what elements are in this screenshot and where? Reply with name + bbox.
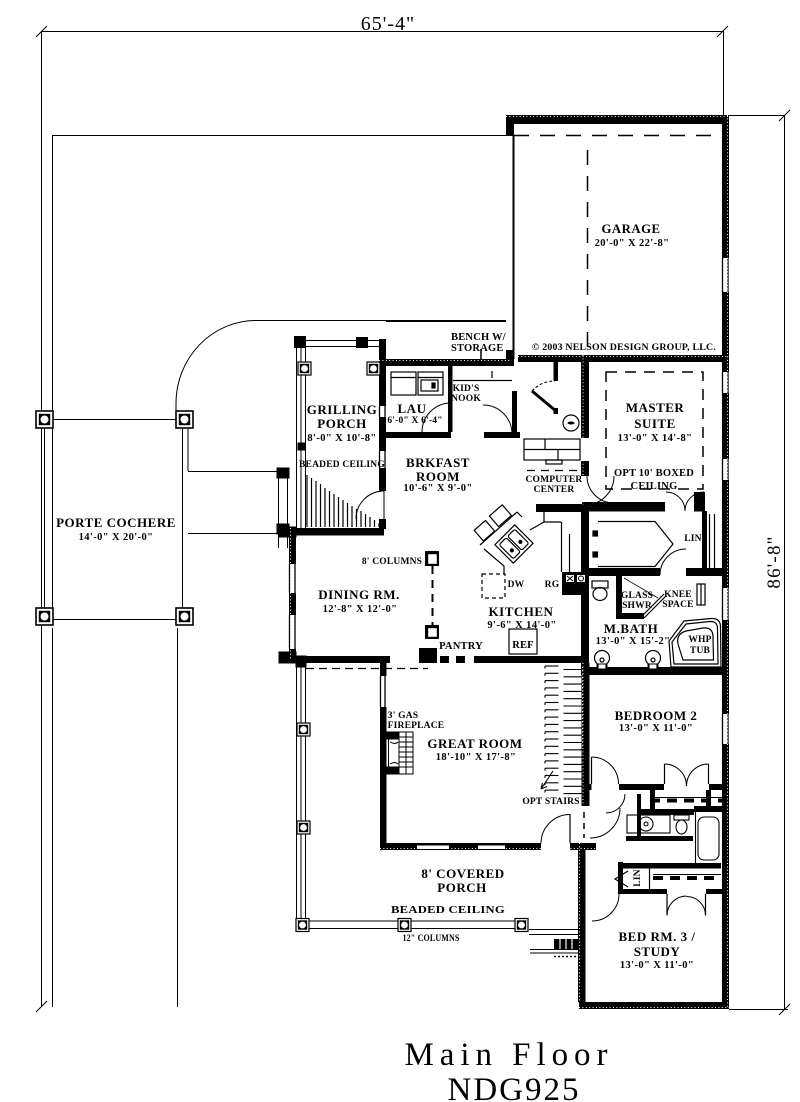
svg-text:GARAGE: GARAGE (602, 221, 661, 236)
svg-text:GRILLING: GRILLING (307, 402, 377, 417)
svg-text:13'-0" X 11'-0": 13'-0" X 11'-0" (619, 723, 693, 734)
svg-text:SHWR: SHWR (622, 601, 652, 611)
svg-text:RG: RG (545, 580, 560, 590)
svg-text:20'-0" X 22'-8": 20'-0" X 22'-8" (595, 238, 670, 249)
svg-text:10'-6" X 9'-0": 10'-6" X 9'-0" (403, 483, 472, 494)
svg-text:13'-0" X 15'-2": 13'-0" X 15'-2" (596, 636, 671, 647)
svg-text:BRKFAST: BRKFAST (406, 455, 470, 470)
svg-text:STUDY: STUDY (634, 944, 681, 959)
svg-text:PORCH: PORCH (317, 416, 366, 431)
svg-text:12'-8" X 12'-0": 12'-8" X 12'-0" (323, 604, 398, 615)
svg-text:GLASS: GLASS (621, 591, 653, 601)
svg-text:3' GAS: 3' GAS (388, 711, 419, 721)
svg-text:BED RM. 3 /: BED RM. 3 / (619, 929, 696, 944)
svg-text:SPACE: SPACE (662, 600, 693, 610)
svg-text:86'-8": 86'-8" (764, 535, 785, 588)
svg-text:BEDROOM 2: BEDROOM 2 (615, 708, 698, 723)
svg-text:BENCH W/: BENCH W/ (451, 332, 507, 343)
svg-text:CEILING: CEILING (631, 481, 678, 492)
svg-text:65'-4": 65'-4" (361, 13, 415, 35)
svg-text:© 2003 NELSON DESIGN GROUP, LL: © 2003 NELSON DESIGN GROUP, LLC. (532, 342, 716, 353)
svg-text:COMPUTER: COMPUTER (525, 475, 582, 485)
svg-text:TUB: TUB (690, 646, 711, 656)
svg-text:DW: DW (508, 580, 525, 590)
svg-text:8' COLUMNS: 8' COLUMNS (362, 557, 422, 567)
svg-text:LIN: LIN (633, 869, 643, 887)
svg-text:GREAT ROOM: GREAT ROOM (427, 736, 522, 751)
svg-text:ROOM: ROOM (416, 469, 460, 484)
svg-text:MASTER: MASTER (626, 400, 685, 415)
svg-text:18'-10" X 17'-8": 18'-10" X 17'-8" (436, 752, 516, 763)
svg-text:NDG925: NDG925 (448, 1072, 579, 1102)
svg-text:14'-0" X 20'-0": 14'-0" X 20'-0" (79, 532, 154, 543)
svg-text:13'-0" X 11'-0": 13'-0" X 11'-0" (620, 960, 694, 971)
svg-text:PORCH: PORCH (437, 880, 486, 895)
svg-text:8'-0" X 10'-8": 8'-0" X 10'-8" (307, 433, 376, 444)
svg-text:KID'S: KID'S (453, 384, 480, 394)
svg-text:KITCHEN: KITCHEN (489, 604, 554, 619)
svg-text:PANTRY: PANTRY (439, 641, 483, 652)
svg-text:CENTER: CENTER (534, 485, 575, 495)
svg-text:NOOK: NOOK (451, 394, 481, 404)
svg-text:6'-0" X 6'-4": 6'-0" X 6'-4" (387, 416, 442, 426)
svg-text:OPT 10' BOXED: OPT 10' BOXED (614, 468, 694, 479)
svg-text:PORTE COCHERE: PORTE COCHERE (56, 515, 176, 530)
svg-text:WHP: WHP (688, 635, 711, 645)
svg-text:DINING RM.: DINING RM. (318, 587, 400, 602)
svg-text:BEADED CEILING: BEADED CEILING (391, 905, 505, 916)
svg-text:M.BATH: M.BATH (604, 621, 658, 636)
svg-text:KNEE: KNEE (664, 590, 692, 600)
svg-text:LAU: LAU (398, 401, 427, 416)
svg-text:STORAGE: STORAGE (451, 343, 504, 354)
svg-text:LIN: LIN (684, 534, 702, 544)
svg-text:OPT STAIRS: OPT STAIRS (522, 797, 579, 807)
svg-text:REF: REF (512, 640, 534, 651)
svg-text:BEADED CEILING: BEADED CEILING (299, 460, 385, 470)
svg-text:8' COVERED: 8' COVERED (421, 866, 504, 881)
svg-text:13'-0" X 14'-8": 13'-0" X 14'-8" (618, 433, 693, 444)
svg-text:FIREPLACE: FIREPLACE (388, 721, 445, 731)
svg-text:SUITE: SUITE (634, 416, 676, 431)
svg-text:12" COLUMNS: 12" COLUMNS (403, 934, 460, 944)
